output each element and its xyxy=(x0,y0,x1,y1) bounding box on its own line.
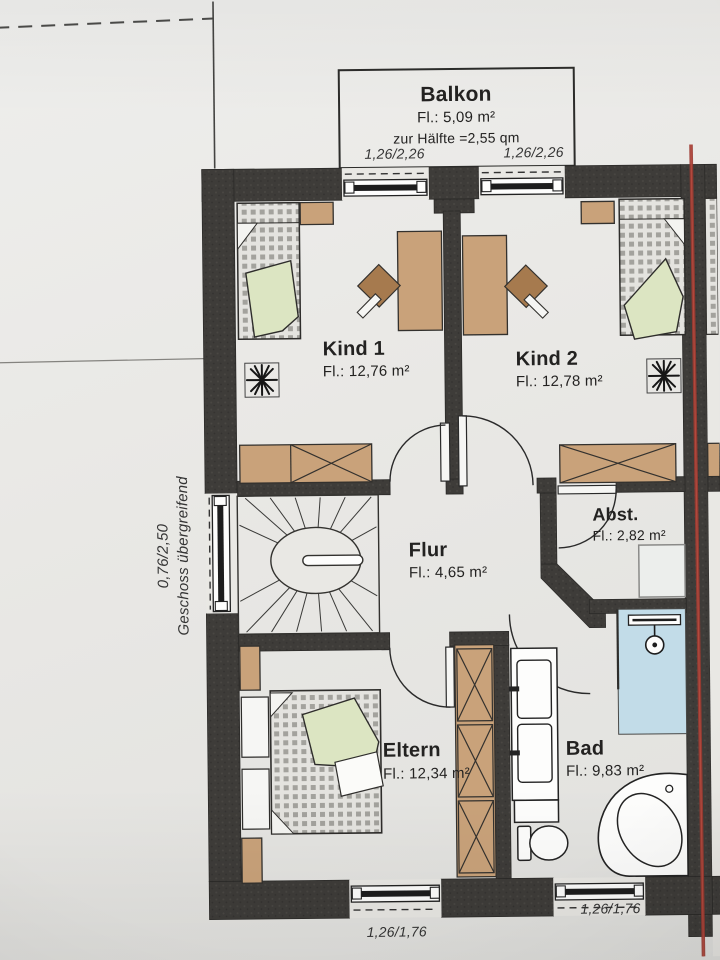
bottom-window-left xyxy=(349,879,441,918)
floorplan-sheet: Balkon Fl.: 5,09 m² zur Hälfte =2,55 qm … xyxy=(0,0,720,960)
eltern-furniture xyxy=(240,644,496,884)
left-margin-line xyxy=(0,359,204,363)
staircase xyxy=(237,495,379,634)
dim-side-window: 0,76/2,50 xyxy=(153,451,175,661)
vertical-boundary-line xyxy=(213,2,215,169)
kind1-desk xyxy=(397,231,442,330)
shower xyxy=(617,609,686,735)
room-label-eltern: Eltern xyxy=(383,739,441,763)
dim-bottom-window-right: 1,26/1,76 xyxy=(580,900,640,917)
kind2-desk xyxy=(462,235,507,334)
side-window xyxy=(205,493,238,613)
kind1-plant xyxy=(245,363,279,397)
room-label-abst: Abst. xyxy=(592,504,638,525)
toilet xyxy=(518,826,568,861)
room-area-kind1: Fl.: 12,76 m² xyxy=(323,362,410,380)
dim-bottom-window-left: 1,26/1,76 xyxy=(367,923,427,940)
vanity xyxy=(509,648,559,822)
kind2-furniture xyxy=(462,199,687,484)
eltern-closet-bottom xyxy=(242,838,262,883)
room-label-kind1: Kind 1 xyxy=(323,338,386,362)
eltern-nightstand-bottom xyxy=(242,769,270,829)
abst-appliance xyxy=(639,545,686,597)
room-area-kind2: Fl.: 12,78 m² xyxy=(516,372,603,390)
balcony-window-right xyxy=(479,166,565,199)
room-label-bad: Bad xyxy=(566,737,605,760)
neighbour-bed-sliver xyxy=(705,198,718,334)
dim-balcony-window-left: 1,26/2,26 xyxy=(364,145,424,162)
room-area-eltern: Fl.: 12,34 m² xyxy=(383,765,470,783)
neighbour-wardrobe-sliver xyxy=(708,443,720,481)
balcony-note: zur Hälfte =2,55 qm xyxy=(393,129,520,146)
eltern-tall-cabinet xyxy=(455,645,496,877)
diagonal-wall xyxy=(541,563,606,628)
door-kind1 xyxy=(389,423,450,482)
bathtub xyxy=(598,773,696,879)
room-area-bad: Fl.: 9,83 m² xyxy=(566,762,644,780)
vanity-cabinet xyxy=(514,800,558,822)
door-eltern xyxy=(390,647,455,708)
floorplan-drawing xyxy=(0,0,720,960)
balcony-window-left xyxy=(342,167,429,200)
door-kind2 xyxy=(458,415,533,486)
room-area-abst: Fl.: 2,82 m² xyxy=(593,527,666,544)
reference-lines xyxy=(0,2,217,363)
dashed-boundary-line xyxy=(0,19,213,28)
balcony-area: Fl.: 5,09 m² xyxy=(417,109,495,127)
room-area-flur: Fl.: 4,65 m² xyxy=(409,564,487,582)
stair-handrail xyxy=(303,555,363,566)
balcony-name: Balkon xyxy=(420,83,491,108)
eltern-closet-top xyxy=(240,646,260,690)
room-label-kind2: Kind 2 xyxy=(516,348,579,372)
side-window-annotation: 0,76/2,50 Geschoss übergreifend xyxy=(153,451,197,661)
kind1-shelf xyxy=(300,202,333,224)
kind1-wardrobe xyxy=(240,444,372,483)
kind2-shelf xyxy=(581,201,614,223)
floorplan-photo: Balkon Fl.: 5,09 m² zur Hälfte =2,55 qm … xyxy=(0,0,720,960)
dim-balcony-window-right: 1,26/2,26 xyxy=(503,144,563,161)
side-window-note: Geschoss übergreifend xyxy=(173,451,195,661)
kind2-plant xyxy=(647,359,681,393)
eltern-nightstand-top xyxy=(241,697,269,757)
kind2-wardrobe xyxy=(560,444,676,483)
room-label-flur: Flur xyxy=(409,539,448,562)
